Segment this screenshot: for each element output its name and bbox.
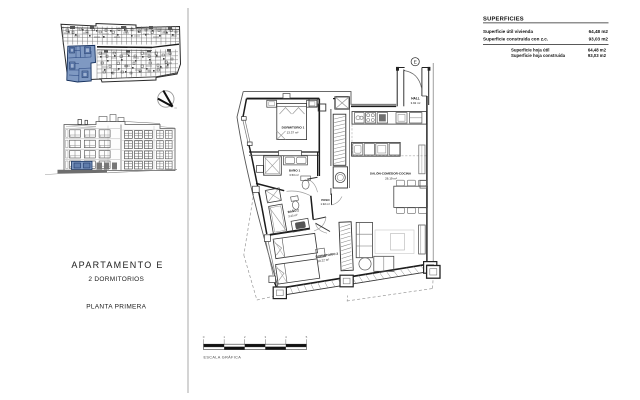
svg-text:3.53 m²: 3.53 m² [289, 173, 299, 177]
svg-text:Superficie hoja construida: Superficie hoja construida [511, 53, 566, 58]
svg-text:26.19 m²: 26.19 m² [385, 177, 397, 181]
svg-text:93,03 m2: 93,03 m2 [589, 36, 609, 41]
svg-text:HALL: HALL [411, 96, 420, 100]
svg-text:N: N [175, 106, 177, 110]
svg-text:13.37 m²: 13.37 m² [287, 130, 299, 134]
svg-text:SUPERFICIES: SUPERFICIES [483, 16, 524, 22]
svg-text:64,48 m2: 64,48 m2 [589, 29, 609, 34]
svg-text:PLANTA PRIMERA: PLANTA PRIMERA [86, 303, 146, 310]
svg-text:Superficie hoja útil: Superficie hoja útil [511, 47, 549, 52]
svg-text:93,03 m2: 93,03 m2 [588, 53, 607, 58]
svg-text:PASO: PASO [321, 198, 330, 202]
svg-text:1.92 m²: 1.92 m² [320, 202, 330, 206]
svg-text:APARTAMENTO E: APARTAMENTO E [71, 260, 163, 270]
svg-text:ESCALA GRÁFICA: ESCALA GRÁFICA [204, 355, 242, 359]
svg-text:64,48 m2: 64,48 m2 [588, 47, 607, 52]
svg-text:Superficie construida con z.c.: Superficie construida con z.c. [483, 36, 548, 41]
svg-text:SALÓN-COMEDOR-COCINA: SALÓN-COMEDOR-COCINA [370, 170, 412, 175]
svg-text:2 DORMITORIOS: 2 DORMITORIOS [88, 276, 144, 283]
svg-text:DORMITORIO 1: DORMITORIO 1 [282, 125, 305, 129]
svg-text:3.92 m²: 3.92 m² [411, 101, 421, 105]
svg-text:Superficie útil vivienda: Superficie útil vivienda [483, 29, 533, 34]
svg-text:E: E [414, 60, 417, 66]
svg-text:BAÑO 1: BAÑO 1 [289, 168, 301, 173]
